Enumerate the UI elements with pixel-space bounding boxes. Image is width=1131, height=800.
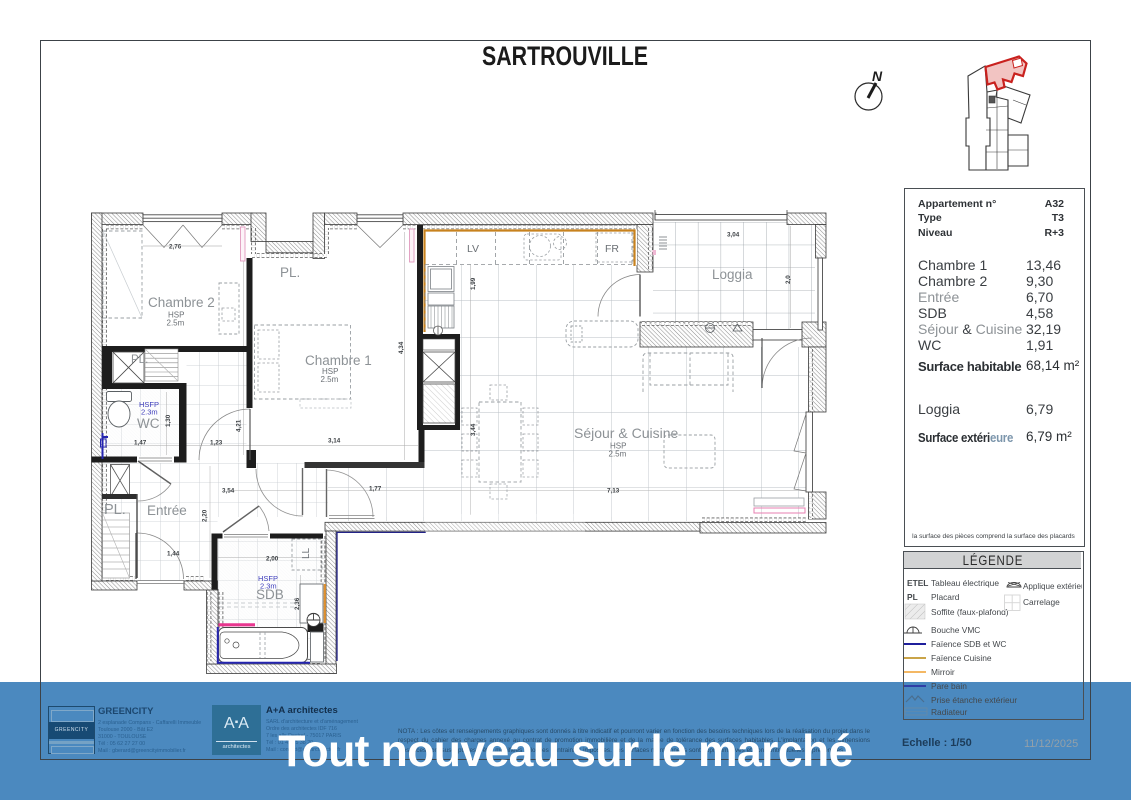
svg-text:1,77: 1,77 <box>369 486 382 493</box>
svg-text:2,76: 2,76 <box>169 244 182 251</box>
svg-text:FR: FR <box>605 243 619 255</box>
svg-text:Pare bain: Pare bain <box>931 681 967 691</box>
svg-text:Chambre 1: Chambre 1 <box>305 353 372 368</box>
svg-text:1,23: 1,23 <box>210 440 223 447</box>
svg-text:Faïence SDB et WC: Faïence SDB et WC <box>931 639 1006 649</box>
svg-text:3,44: 3,44 <box>470 423 477 436</box>
svg-text:Mirroir: Mirroir <box>931 667 955 677</box>
svg-text:Radiateur: Radiateur <box>931 707 968 717</box>
svg-text:2.5m: 2.5m <box>609 450 627 459</box>
svg-text:PL: PL <box>907 592 918 602</box>
svg-text:Applique extérieur: Applique extérieur <box>1023 582 1082 591</box>
svg-text:1,30: 1,30 <box>165 414 172 427</box>
svg-text:1,99: 1,99 <box>470 277 477 290</box>
svg-text:1,47: 1,47 <box>134 440 147 447</box>
svg-text:N: N <box>872 68 883 84</box>
svg-text:3,54: 3,54 <box>222 488 235 495</box>
svg-text:PL.: PL. <box>131 354 148 366</box>
svg-text:2,20: 2,20 <box>202 509 209 522</box>
svg-text:PL.: PL. <box>280 265 300 280</box>
svg-text:LV: LV <box>467 243 479 255</box>
svg-text:Bouche VMC: Bouche VMC <box>931 625 980 635</box>
svg-text:Loggia: Loggia <box>712 267 753 282</box>
svg-text:2,36: 2,36 <box>294 597 301 610</box>
svg-text:ETEL: ETEL <box>907 578 928 588</box>
svg-text:Soffite (faux-plafond): Soffite (faux-plafond) <box>931 607 1009 617</box>
svg-text:Séjour & Cuisine: Séjour & Cuisine <box>574 425 678 441</box>
svg-text:WC: WC <box>137 416 160 431</box>
svg-text:2.5m: 2.5m <box>167 319 185 328</box>
svg-text:Chambre 2: Chambre 2 <box>148 295 215 310</box>
svg-text:3,04: 3,04 <box>727 232 740 239</box>
svg-text:2.3m: 2.3m <box>260 582 277 591</box>
svg-text:3,14: 3,14 <box>328 438 341 445</box>
svg-text:Entrée: Entrée <box>147 503 187 518</box>
svg-text:Carrelage: Carrelage <box>1023 597 1060 607</box>
svg-text:4,34: 4,34 <box>398 341 405 354</box>
svg-text:2,0: 2,0 <box>785 275 792 284</box>
svg-text:2.3m: 2.3m <box>141 408 158 417</box>
svg-text:Prise étanche extérieur: Prise étanche extérieur <box>931 695 1017 705</box>
svg-text:Tableau électrique: Tableau électrique <box>931 578 999 588</box>
svg-text:7,13: 7,13 <box>607 488 620 495</box>
svg-text:Faïence Cuisine: Faïence Cuisine <box>931 653 992 663</box>
svg-text:4,21: 4,21 <box>236 419 243 432</box>
svg-text:1,44: 1,44 <box>167 551 180 558</box>
svg-text:2.5m: 2.5m <box>321 375 339 384</box>
svg-text:LL: LL <box>301 547 312 559</box>
svg-text:PL.: PL. <box>104 502 126 518</box>
svg-text:2,00: 2,00 <box>266 556 279 563</box>
svg-text:Placard: Placard <box>931 592 960 602</box>
